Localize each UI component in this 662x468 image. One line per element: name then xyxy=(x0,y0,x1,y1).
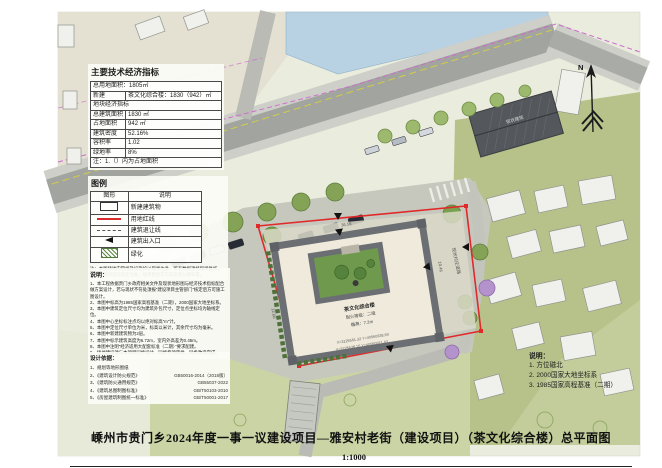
basis-code: GB/T50103-2010 xyxy=(193,387,228,395)
tree xyxy=(490,93,504,107)
indicators-table: 总用地面积：1805㎡ 新建 茶文化综合楼：1830（942）㎡ 地块经济指标 … xyxy=(90,81,222,168)
tree xyxy=(472,244,488,260)
indicators-title: 主要技术经济指标 xyxy=(91,66,222,78)
corner-pier xyxy=(416,218,426,228)
indicators-panel: 主要技术经济指标 总用地面积：1805㎡ 新建 茶文化综合楼：1830（942）… xyxy=(88,64,224,170)
legend-panel: 图例 图形 说明 新建建筑物 用地红线 建筑退让线 建筑出入口 绿化 注：本图场… xyxy=(88,176,228,280)
basis-item: 3、《建筑防火通用规范》 GB55037-2022 xyxy=(90,379,228,387)
legend-label: 建筑退让线 xyxy=(128,226,201,237)
legend-label: 用地红线 xyxy=(128,215,201,226)
legend-label: 建筑出入口 xyxy=(128,237,201,248)
basis-item: 2、《建筑设计防火规范》 GB50016-2014（2018版） xyxy=(90,372,228,380)
boundary-vertex xyxy=(256,224,260,228)
indicators-footnote: 注：1.（）内为占地面积 xyxy=(91,158,222,168)
existing-building xyxy=(58,25,74,47)
entrance-symbol-icon xyxy=(105,237,113,243)
basis-code: GB50016-2014（2018版） xyxy=(174,372,228,380)
design-basis-panel: 设计依据： 1、规划等地形图纸 2、《建筑设计防火规范》 GB50016-201… xyxy=(88,352,230,404)
tree xyxy=(462,102,476,116)
map-note-line: 2. 2000国家大地坐标系 xyxy=(529,371,649,381)
tree xyxy=(406,120,420,134)
new-building-symbol-icon xyxy=(100,202,118,211)
basis-code: GB55037-2022 xyxy=(197,379,228,387)
boundary-vertex xyxy=(464,204,468,208)
tree-purple xyxy=(445,345,459,359)
indicator-label: 容积率 xyxy=(91,139,126,149)
indicator-value: 1.02 xyxy=(126,139,222,149)
notes-title: 说明： xyxy=(90,270,228,279)
tree xyxy=(378,129,392,143)
indicator-value: 52.16% xyxy=(126,129,222,139)
notes-panel: 说明： 1、本工程依据贵门乡政府相关文件及现状地形图与经济技术指标配合做方案设计… xyxy=(88,268,230,359)
indicator-label: 建筑密度 xyxy=(91,129,126,139)
indicator-value: 8% xyxy=(126,148,222,158)
legend-label: 绿化 xyxy=(128,248,201,263)
legend-col-symbol: 图形 xyxy=(91,192,129,202)
corner-pier xyxy=(269,242,279,252)
legend-title: 图例 xyxy=(91,178,226,189)
note-item: 1、本工程依据贵门乡政府相关文件及现状地形图与经济技术指标配合做方案设计，若与现… xyxy=(90,281,228,300)
map-notes-title: 说明： xyxy=(529,350,649,360)
indicator-value: 942 ㎡ xyxy=(126,120,222,130)
legend-table: 图形 说明 新建建筑物 用地红线 建筑退让线 建筑出入口 绿化 xyxy=(90,191,202,263)
design-basis-title: 设计依据： xyxy=(90,354,228,362)
tree xyxy=(258,203,276,221)
corner-pier xyxy=(287,355,297,365)
new-label-cell: 新建 xyxy=(91,91,126,101)
north-label: N xyxy=(578,63,583,72)
basis-code: GB/T50001-2017 xyxy=(193,394,228,402)
basis-item: 5、《房屋建筑制图统一标准》 GB/T50001-2017 xyxy=(90,394,228,402)
legend-label: 新建建筑物 xyxy=(128,201,201,215)
red-line-symbol-icon xyxy=(97,218,121,220)
boundary-vertex xyxy=(479,329,483,333)
basis-name: 5、《房屋建筑制图统一标准》 xyxy=(90,394,149,402)
basis-name: 3、《建筑防火通用规范》 xyxy=(90,379,140,387)
indicator-label: 总建筑面积 xyxy=(91,110,126,120)
basis-item: 1、规划等地形图纸 xyxy=(90,364,228,372)
existing-building xyxy=(67,148,81,164)
indicator-label: 占地面积 xyxy=(91,120,126,130)
map-notes-panel: 说明： 1. 方位磁北 2. 2000国家大地坐标系 3. 1985国家高程基准… xyxy=(527,348,651,393)
title-bar: 嵊州市贵门乡2024年度一事一议建设项目—雅安村老街（建设项目）（茶文化综合楼）… xyxy=(70,429,632,467)
legend-col-desc: 说明 xyxy=(128,192,201,202)
tree xyxy=(326,183,344,201)
tree xyxy=(519,85,531,97)
drawing-title-underline: 嵊州市贵门乡2024年度一事一议建设项目—雅安村老街（建设项目）（茶文化综合楼）… xyxy=(70,429,632,467)
drawing-scale: 1:1000 xyxy=(342,452,366,462)
tree-purple xyxy=(479,280,495,296)
land-area-cell: 总用地面积：1805㎡ xyxy=(91,82,222,92)
basis-name: 2、《建筑设计防火规范》 xyxy=(90,372,140,380)
greening-symbol-icon xyxy=(101,248,118,258)
basis-name: 1、规划等地形图纸 xyxy=(90,364,129,372)
drawing-title: 嵊州市贵门乡2024年度一事一议建设项目—雅安村老街（建设项目）（茶文化综合楼）… xyxy=(91,431,611,445)
map-note-line: 1. 方位磁北 xyxy=(529,361,649,371)
tree xyxy=(292,193,310,211)
map-note-line: 3. 1985国家高程基准（二期） xyxy=(529,381,649,391)
indicator-value: 1830 ㎡ xyxy=(126,110,222,120)
setback-line-symbol-icon xyxy=(97,230,121,231)
tree xyxy=(434,111,448,125)
drawing-sheet: 现状建筑 xyxy=(0,0,662,468)
new-value-cell: 茶文化综合楼：1830（942）㎡ xyxy=(126,91,222,101)
basis-name: 4、《建筑总图制图标准》 xyxy=(90,387,140,395)
indicator-label: 绿地率 xyxy=(91,148,126,158)
section-header-cell: 地块经济指标 xyxy=(91,101,222,111)
note-item: 3、本图中建筑定位尺寸均为建筑外包尺寸，定位点坐标均为轴线定位。 xyxy=(90,306,228,319)
existing-building xyxy=(63,91,77,109)
corner-pier xyxy=(434,332,444,342)
basis-item: 4、《建筑总图制图标准》 GB/T50103-2010 xyxy=(90,387,228,395)
